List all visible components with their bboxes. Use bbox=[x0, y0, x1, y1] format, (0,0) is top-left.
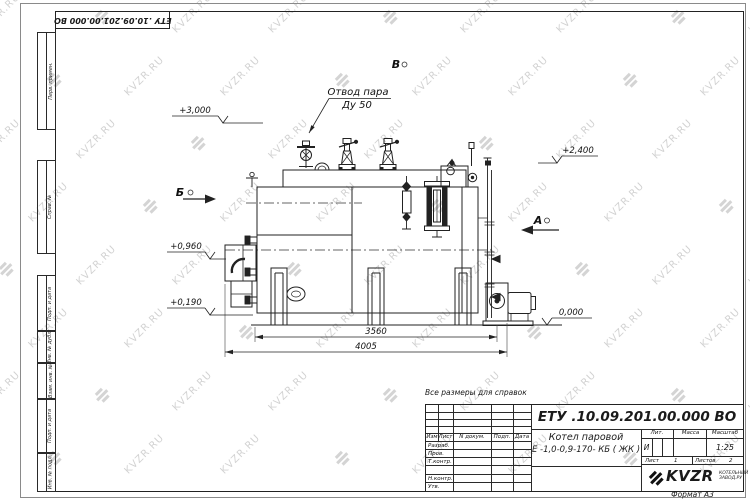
dome bbox=[315, 163, 329, 170]
view-b: Б bbox=[176, 186, 216, 204]
tb-lit-label: Лит. bbox=[643, 430, 671, 436]
tb-product-type: Е -1,0-0,9-170- КБ ( ЖК ) bbox=[531, 445, 641, 455]
view-label-v: В bbox=[392, 58, 400, 71]
tb-row-approver: Утв. bbox=[428, 484, 440, 490]
water-gauge-2 bbox=[425, 176, 450, 237]
tb-massa-label: Масса bbox=[675, 430, 706, 436]
view-v: В bbox=[392, 58, 407, 71]
elevation-mark-3000 bbox=[172, 116, 263, 123]
tb-lit-value: И bbox=[641, 443, 652, 452]
view-a: А bbox=[521, 214, 559, 235]
tb-sheet-value: 1 bbox=[674, 458, 678, 464]
tb-col-data: Дата bbox=[513, 434, 531, 440]
tb-col-izm: Изм bbox=[426, 434, 438, 440]
dim-text-3560: 3560 bbox=[365, 327, 387, 337]
tb-col-list: Лист bbox=[438, 434, 453, 440]
view-label-a: А bbox=[533, 214, 543, 227]
tb-masshtab-label: Масштаб bbox=[707, 430, 743, 436]
elevation-mark-0190 bbox=[167, 308, 253, 315]
tb-row-checker: Пров. bbox=[428, 451, 444, 457]
callout-line1: Отвод пара bbox=[328, 87, 389, 98]
elevation-mark-2400 bbox=[538, 156, 598, 163]
safety-valve-2 bbox=[380, 139, 399, 171]
blower-fan bbox=[483, 283, 536, 326]
manhole bbox=[287, 287, 305, 301]
drawing-sheet: KVZR.RUKVZR.RUKVZR.RUKVZR.RUKVZR.RUKVZR.… bbox=[0, 0, 750, 500]
steam-outlet-valve bbox=[297, 141, 315, 170]
water-gauge-1 bbox=[402, 176, 411, 229]
centerlines bbox=[225, 203, 492, 250]
tb-doc-number: ЕТУ .10.09.201.00.000 ВО bbox=[533, 406, 741, 427]
tb-col-podp: Подп. bbox=[491, 434, 513, 440]
callout-line2: Ду 50 bbox=[341, 100, 372, 111]
tb-scale-value: 1:25 bbox=[707, 443, 743, 452]
steam-callout: Отвод пара Ду 50 bbox=[309, 87, 391, 133]
tb-product-name: Котел паровой bbox=[531, 432, 641, 443]
tb-col-ndoc: N докум. bbox=[453, 434, 491, 440]
elevation-text-3000: +3,000 bbox=[179, 106, 210, 116]
view-label-b: Б bbox=[176, 186, 184, 199]
elevation-mark-0000 bbox=[542, 318, 592, 325]
tb-sheet-label: Лист bbox=[645, 458, 659, 464]
tb-row-tcontrol: Т.контр. bbox=[428, 459, 452, 465]
company-name: KVZR bbox=[666, 467, 714, 485]
dim-text-4005: 4005 bbox=[355, 342, 377, 352]
tb-row-ncontrol: Н.контр. bbox=[428, 476, 453, 482]
tb-row-developer: Разраб. bbox=[428, 443, 450, 449]
elevation-text-0190: +0,190 bbox=[170, 298, 201, 308]
title-block: Изм Лист N докум. Подп. Дата Разраб. Про… bbox=[425, 404, 744, 492]
format-label: Формат А3 bbox=[640, 490, 745, 499]
kvzr-logo-icon bbox=[647, 469, 666, 488]
tb-sheets-label: Листов bbox=[695, 458, 716, 464]
dimension-3560: 3560 bbox=[255, 327, 497, 339]
tb-sheets-value: 2 bbox=[729, 458, 733, 464]
burner bbox=[225, 245, 256, 307]
company-subtitle: КОТЕЛЬНЫЙ ЗАВОД.РУ bbox=[719, 471, 748, 481]
control-fitting bbox=[441, 143, 477, 188]
elevation-text-0960: +0,960 bbox=[170, 242, 201, 252]
elevation-text-0000: 0,000 bbox=[559, 308, 583, 318]
support-legs bbox=[271, 268, 471, 325]
company-subtitle-line2: ЗАВОД.РУ bbox=[719, 476, 748, 481]
dimension-4005: 4005 bbox=[225, 342, 507, 354]
elevation-mark-0960 bbox=[167, 252, 226, 259]
elevation-text-2400: +2,400 bbox=[562, 146, 593, 156]
reference-note: Все размеры для справок bbox=[425, 388, 527, 397]
safety-valve-1 bbox=[339, 139, 358, 171]
